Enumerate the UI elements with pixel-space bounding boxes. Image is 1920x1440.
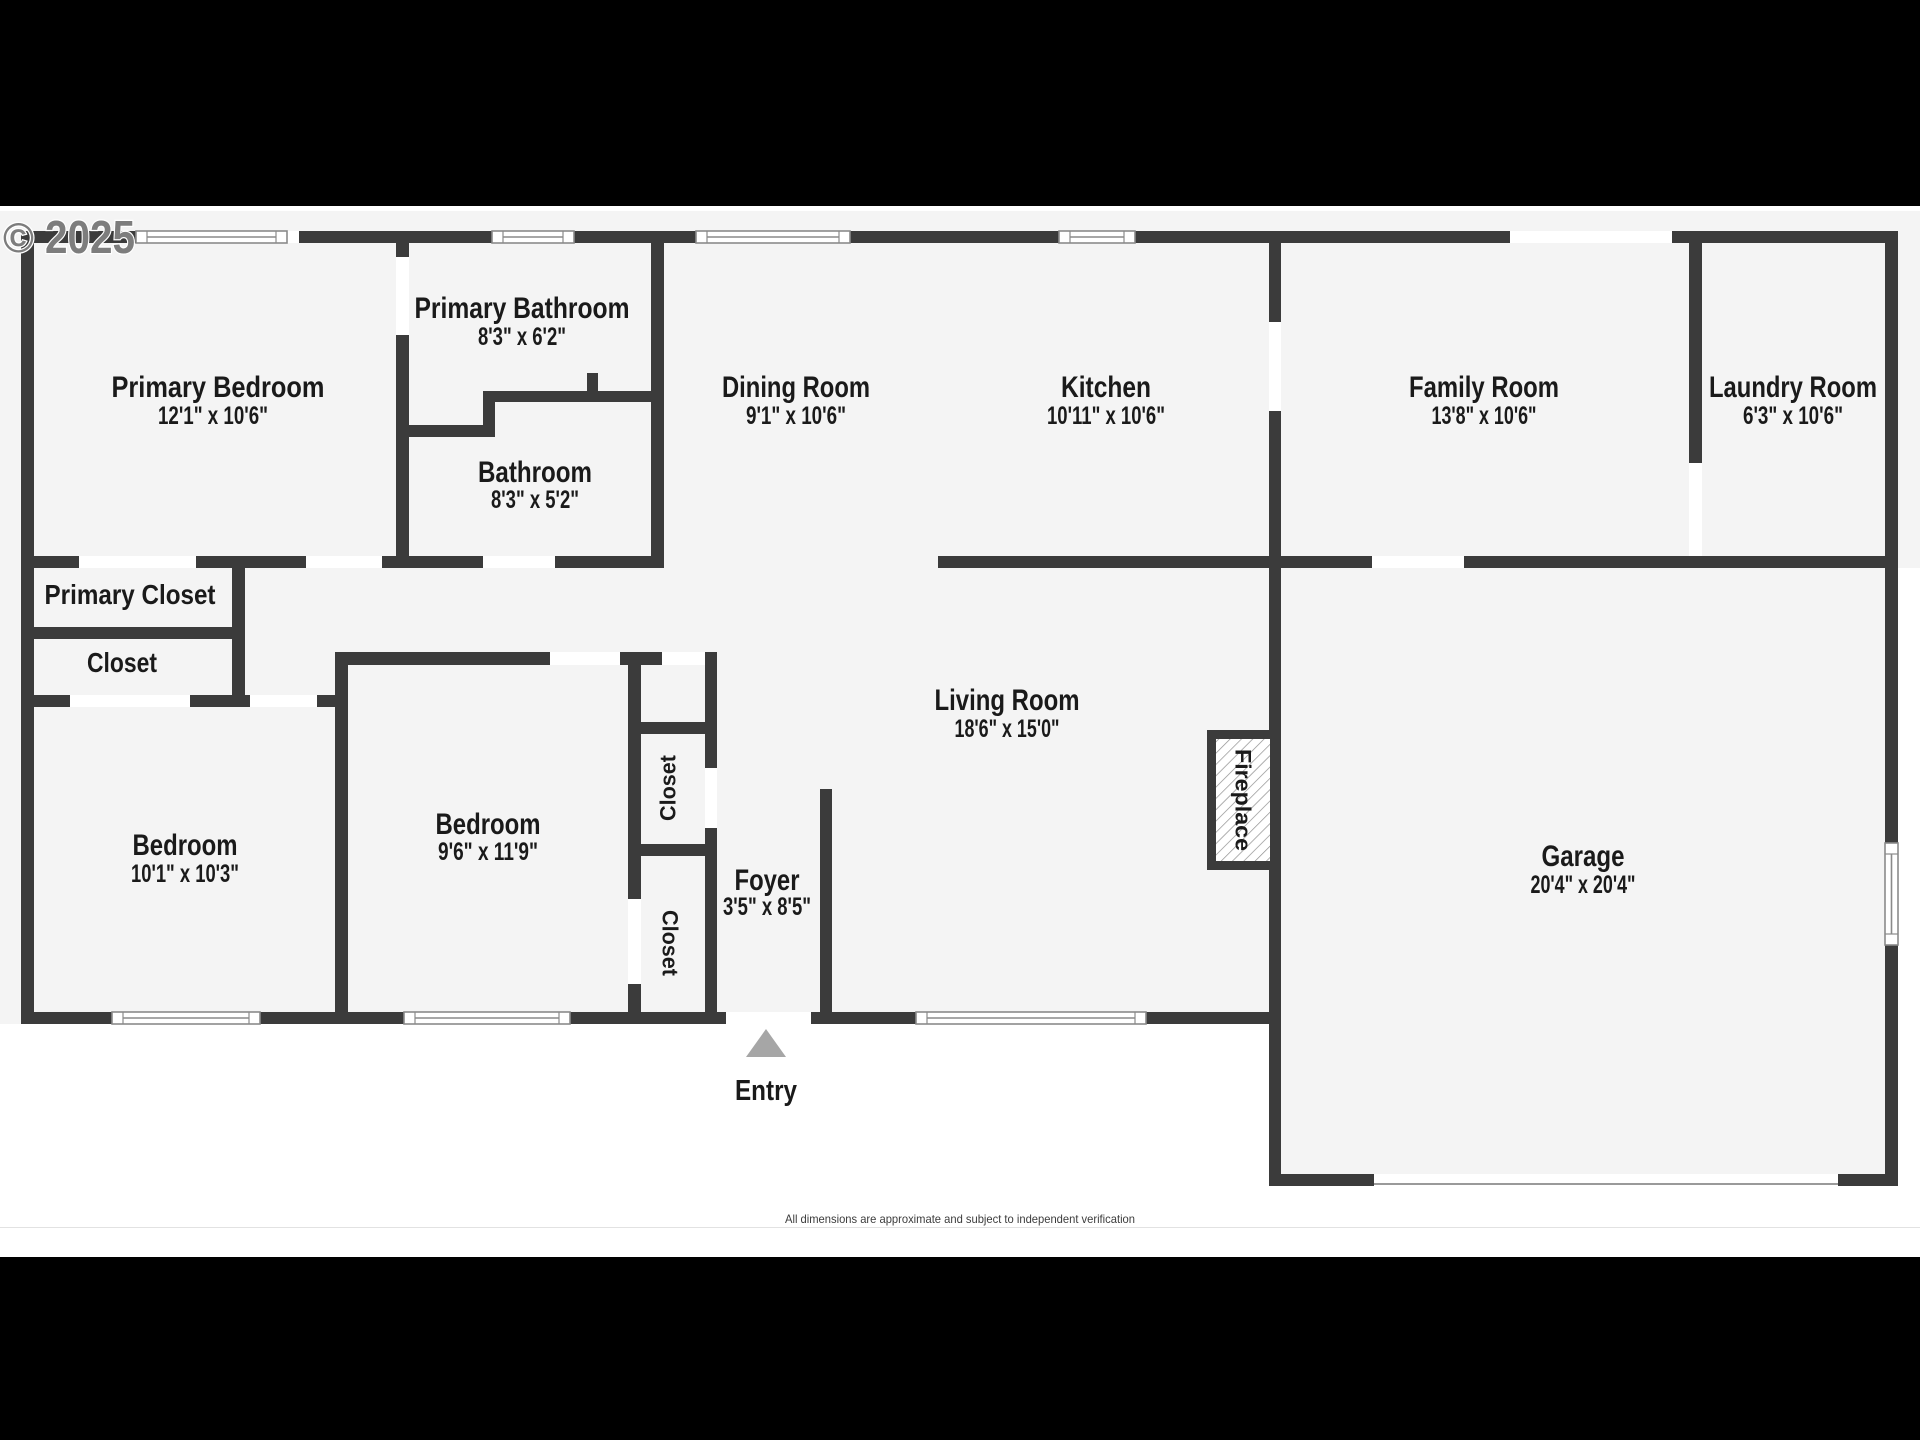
svg-text:Closet: Closet — [656, 754, 681, 821]
svg-text:Family Room: Family Room — [1409, 371, 1559, 404]
svg-text:Primary Bathroom: Primary Bathroom — [415, 292, 630, 325]
svg-text:13'8" x 10'6": 13'8" x 10'6" — [1432, 402, 1537, 430]
svg-text:Closet: Closet — [87, 647, 157, 678]
svg-text:Garage: Garage — [1542, 840, 1625, 873]
svg-text:Primary Closet: Primary Closet — [45, 579, 216, 610]
svg-text:20'4" x 20'4": 20'4" x 20'4" — [1531, 871, 1636, 899]
svg-text:Laundry Room: Laundry Room — [1709, 371, 1877, 404]
svg-text:8'3" x 5'2": 8'3" x 5'2" — [491, 486, 579, 514]
svg-text:Bedroom: Bedroom — [436, 808, 541, 841]
svg-text:All dimensions are approximate: All dimensions are approximate and subje… — [785, 1212, 1135, 1226]
svg-text:3'5" x 8'5": 3'5" x 8'5" — [723, 893, 811, 921]
svg-text:12'1" x 10'6": 12'1" x 10'6" — [158, 402, 268, 430]
svg-text:Bedroom: Bedroom — [133, 829, 238, 862]
svg-text:2025: 2025 — [45, 211, 135, 263]
svg-text:Closet: Closet — [658, 910, 683, 977]
svg-text:9'1" x 10'6": 9'1" x 10'6" — [746, 402, 846, 430]
svg-text:18'6" x 15'0": 18'6" x 15'0" — [955, 715, 1060, 743]
svg-text:Fireplace: Fireplace — [1231, 749, 1256, 851]
svg-text:Living Room: Living Room — [935, 684, 1080, 717]
svg-text:Bathroom: Bathroom — [478, 456, 592, 489]
svg-text:10'1" x 10'3": 10'1" x 10'3" — [131, 860, 239, 888]
svg-text:10'11" x 10'6": 10'11" x 10'6" — [1047, 402, 1165, 430]
svg-text:Primary Bedroom: Primary Bedroom — [112, 371, 325, 404]
svg-text:Kitchen: Kitchen — [1061, 371, 1151, 404]
svg-text:8'3" x 6'2": 8'3" x 6'2" — [478, 323, 566, 351]
svg-text:9'6" x 11'9": 9'6" x 11'9" — [438, 838, 538, 866]
svg-text:Dining Room: Dining Room — [722, 371, 870, 404]
svg-text:©: © — [3, 214, 34, 261]
svg-text:Entry: Entry — [735, 1075, 797, 1107]
svg-text:6'3" x 10'6": 6'3" x 10'6" — [1743, 402, 1843, 430]
